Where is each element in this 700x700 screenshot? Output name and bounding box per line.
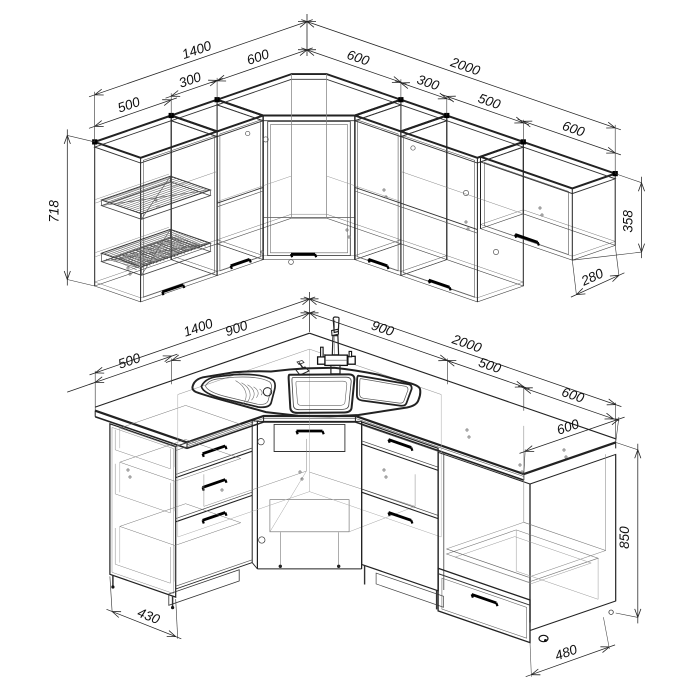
svg-text:850: 850 (617, 526, 632, 549)
svg-text:358: 358 (621, 210, 636, 233)
svg-text:718: 718 (46, 200, 61, 223)
